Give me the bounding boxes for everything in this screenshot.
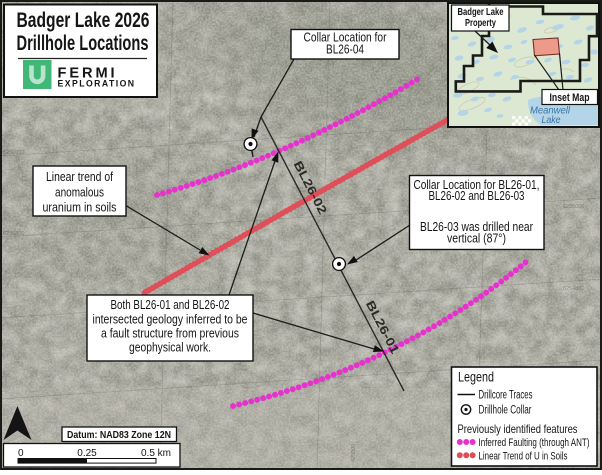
- svg-text:Lake: Lake: [542, 115, 561, 126]
- svg-text:Datum: NAD83 Zone 12N: Datum: NAD83 Zone 12N: [67, 429, 171, 441]
- svg-text:Drillcore Traces: Drillcore Traces: [479, 390, 533, 402]
- svg-text:Badger Lake: Badger Lake: [458, 7, 504, 18]
- svg-text:Linear Trend of U in Soils: Linear Trend of U in Soils: [479, 451, 568, 463]
- svg-text:BL26-04: BL26-04: [326, 43, 364, 57]
- svg-text:Inferred Faulting (through ANT: Inferred Faulting (through ANT): [479, 437, 590, 449]
- svg-text:Legend: Legend: [458, 369, 494, 385]
- svg-text:0: 0: [18, 448, 24, 459]
- svg-text:Drillhole Collar: Drillhole Collar: [479, 405, 532, 417]
- svg-text:geophysical work.: geophysical work.: [129, 341, 211, 355]
- svg-text:anomalous: anomalous: [55, 186, 104, 200]
- svg-text:6256000: 6256000: [3, 150, 24, 156]
- svg-text:6255800: 6255800: [3, 231, 24, 237]
- svg-text:Badger Lake 2026: Badger Lake 2026: [17, 9, 150, 32]
- svg-text:vertical (87°): vertical (87°): [447, 232, 506, 246]
- svg-text:6255600: 6255600: [3, 400, 24, 406]
- svg-text:EXPLORATION: EXPLORATION: [58, 79, 136, 89]
- svg-text:Both BL26-01 and BL26-02: Both BL26-01 and BL26-02: [111, 298, 230, 312]
- svg-text:uranium in soils: uranium in soils: [43, 201, 117, 215]
- svg-text:425000: 425000: [351, 444, 357, 462]
- svg-text:Inset Map: Inset Map: [550, 92, 590, 104]
- svg-text:0.5 km: 0.5 km: [141, 448, 171, 459]
- svg-text:0.25: 0.25: [77, 448, 97, 459]
- svg-text:BL26-02 and BL26-03: BL26-02 and BL26-03: [429, 189, 525, 203]
- svg-text:Previously identified features: Previously identified features: [458, 422, 578, 436]
- svg-text:Drillhole Locations: Drillhole Locations: [17, 32, 149, 55]
- svg-text:a fault structure from previou: a fault structure from previous: [101, 327, 239, 341]
- svg-text:intersected geology inferred t: intersected geology inferred to be: [93, 313, 248, 327]
- svg-text:Property: Property: [465, 18, 496, 29]
- svg-text:6255000: 6255000: [563, 204, 584, 210]
- svg-text:6254800: 6254800: [563, 286, 584, 292]
- svg-text:Linear trend of: Linear trend of: [46, 170, 113, 184]
